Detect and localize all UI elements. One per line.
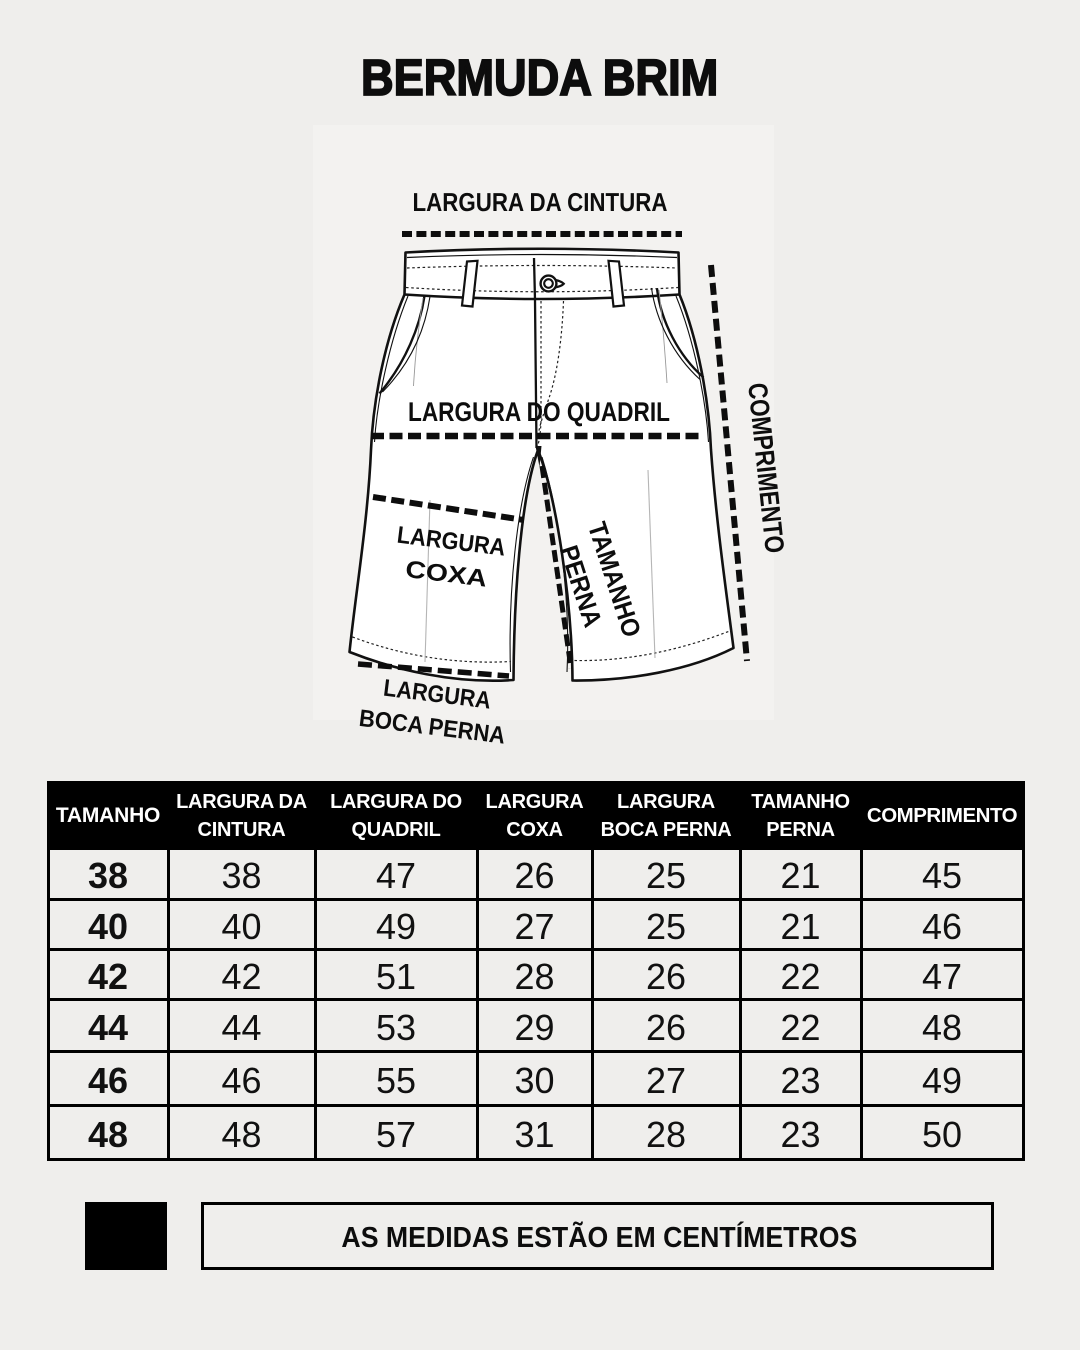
svg-text:LARGURA DO QUADRIL: LARGURA DO QUADRIL <box>408 397 670 427</box>
svg-text:COMPRIMENTO: COMPRIMENTO <box>742 381 790 554</box>
svg-text:LARGURA DA CINTURA: LARGURA DA CINTURA <box>413 187 668 217</box>
